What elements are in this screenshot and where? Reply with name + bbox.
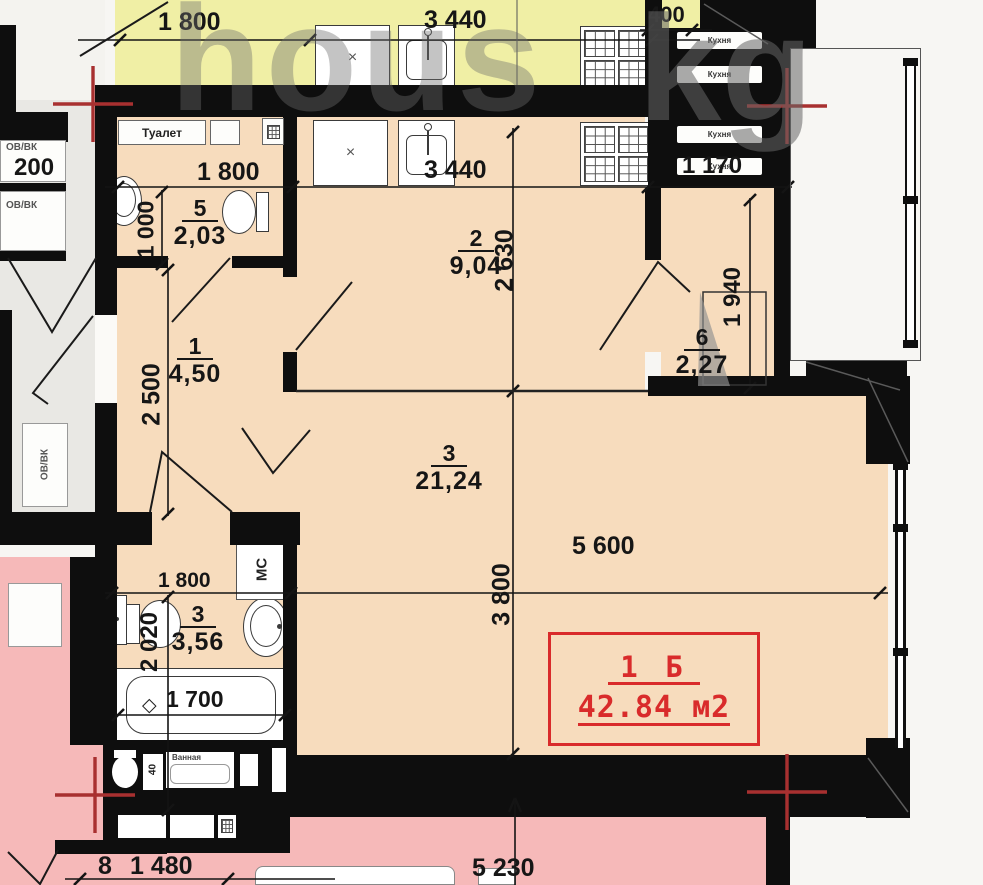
neighbor-box	[170, 815, 214, 838]
neighbor-dim-40: 40	[148, 730, 159, 810]
dim-vent-1170: 1 170	[682, 152, 742, 180]
room-area: 3,56	[172, 628, 225, 656]
apartment-type: 1 Б	[608, 652, 699, 685]
apartment-label-box: 1 Б 42.84 м2	[548, 632, 760, 746]
dim-top-1800: 1 800	[158, 8, 221, 37]
counter-icon: ×	[315, 25, 390, 91]
neighbor-box	[118, 815, 166, 838]
wall-kitchen-pantry	[645, 188, 661, 260]
dim-bath-1800: 1 800	[158, 569, 211, 593]
dim-living-3800: 3 800	[488, 545, 517, 645]
window-mullion	[903, 196, 918, 204]
neighbor-box	[218, 815, 236, 838]
room-label-wc: 5 2,03	[145, 196, 255, 251]
room-number: 3	[180, 602, 217, 628]
wall-pantry-right	[774, 45, 790, 395]
wall-corridor-band1	[0, 112, 68, 142]
window-mullion	[903, 340, 918, 348]
room-number: 6	[684, 325, 721, 351]
room-area: 9,04	[450, 252, 503, 280]
counter-x-mark: ×	[348, 49, 357, 67]
neighbor-fixture	[272, 748, 286, 792]
toilet-tank-icon	[256, 192, 269, 232]
living-room-window	[895, 464, 906, 756]
neighbor-toilet-icon	[112, 756, 138, 788]
neighbor-bathtub: Ванная	[166, 752, 234, 788]
room-number: 2	[458, 226, 495, 252]
dim-tub-1700: 1 700	[166, 686, 224, 713]
window-mullion	[893, 648, 908, 656]
toilet-shaft-label-box: Туалет	[118, 120, 206, 145]
window-mullion	[893, 462, 908, 470]
toilet-shaft-label: Туалет	[142, 126, 182, 140]
meter-cabinet-label: ОВ/ВК	[40, 415, 51, 515]
room-area: 2,27	[676, 351, 729, 379]
shaft-box	[210, 120, 240, 145]
wall-corridor-band3	[0, 251, 66, 261]
dim-bottom-8: 8	[98, 852, 112, 881]
wall-left-bath-neighbor	[70, 557, 117, 745]
dim-left-200: 200	[14, 154, 54, 182]
room-area: 21,24	[415, 467, 483, 495]
stove-icon	[580, 122, 652, 186]
dim-top-3440: 3 440	[424, 6, 487, 35]
dim-bottom-1480: 1 480	[130, 852, 193, 881]
wall-corridor-band2	[0, 183, 66, 191]
counter-x-mark: ×	[346, 144, 355, 162]
window-mullion	[893, 748, 908, 756]
wall-corridor-edge-top	[0, 25, 16, 113]
room-label-bathroom: 3 3,56	[143, 602, 253, 657]
meter-cabinet-label: ОВ/ВК	[6, 200, 37, 211]
floor-plan: × × ◇ МС	[0, 0, 983, 885]
neighbor-cabinet	[8, 583, 62, 647]
dim-wc-1800: 1 800	[197, 158, 260, 187]
room-number: 1	[177, 334, 214, 360]
room-area: 4,50	[169, 360, 222, 388]
wall-wc-hall-right	[232, 256, 295, 268]
vent-shaft-kitchen: Кухня	[677, 32, 762, 49]
window-mullion	[903, 58, 918, 66]
dim-kitchen-3440: 3 440	[424, 156, 487, 185]
counter-icon: ×	[313, 120, 388, 186]
dim-living-5600: 5 600	[572, 532, 635, 561]
window-mullion	[893, 524, 908, 532]
wall-pink-divider	[766, 800, 790, 885]
vent-grate-box	[262, 118, 284, 145]
room-label-living: 3 21,24	[394, 441, 504, 496]
bathtub-drain-diamond: ◇	[142, 694, 157, 717]
wall-bath-right	[283, 512, 297, 755]
dim-top-400: 400	[648, 2, 685, 28]
wall-balcony-bottom	[806, 360, 907, 392]
balcony-window	[905, 60, 916, 348]
bath-door-gap	[152, 512, 230, 545]
wall-bath-top-left	[0, 512, 152, 545]
room-label-hall: 1 4,50	[140, 334, 250, 389]
vent-shaft-kitchen: Кухня	[677, 126, 762, 143]
entrance-door-gap	[95, 315, 117, 403]
wall-top	[95, 85, 660, 117]
dim-bottom-5230: 5 230	[472, 854, 535, 883]
neighbor-fixture	[240, 754, 258, 786]
vent-shaft-kitchen: Кухня	[677, 66, 762, 83]
wall-hall-kitchen-lower	[283, 352, 297, 392]
room-number: 5	[182, 196, 219, 222]
meter-cabinet-label: ОВ/ВК	[6, 142, 37, 153]
neighbor-toilet-tank	[114, 750, 136, 758]
room-area: 2,03	[174, 222, 227, 250]
room-label-kitchen: 2 9,04	[421, 226, 531, 281]
room-label-pantry: 6 2,27	[647, 325, 757, 380]
wall-hall-kitchen-upper	[283, 117, 297, 277]
neighbor-bath-label: Ванная	[172, 753, 201, 762]
wall-corridor-edge-mid	[0, 310, 12, 515]
wall-left-upper	[95, 85, 117, 315]
stove-icon	[580, 26, 652, 90]
neighbor-bathtub-partial	[255, 866, 455, 885]
wall-bottom-main	[290, 755, 910, 817]
room-number: 3	[431, 441, 468, 467]
apartment-area: 42.84 м2	[578, 692, 731, 727]
